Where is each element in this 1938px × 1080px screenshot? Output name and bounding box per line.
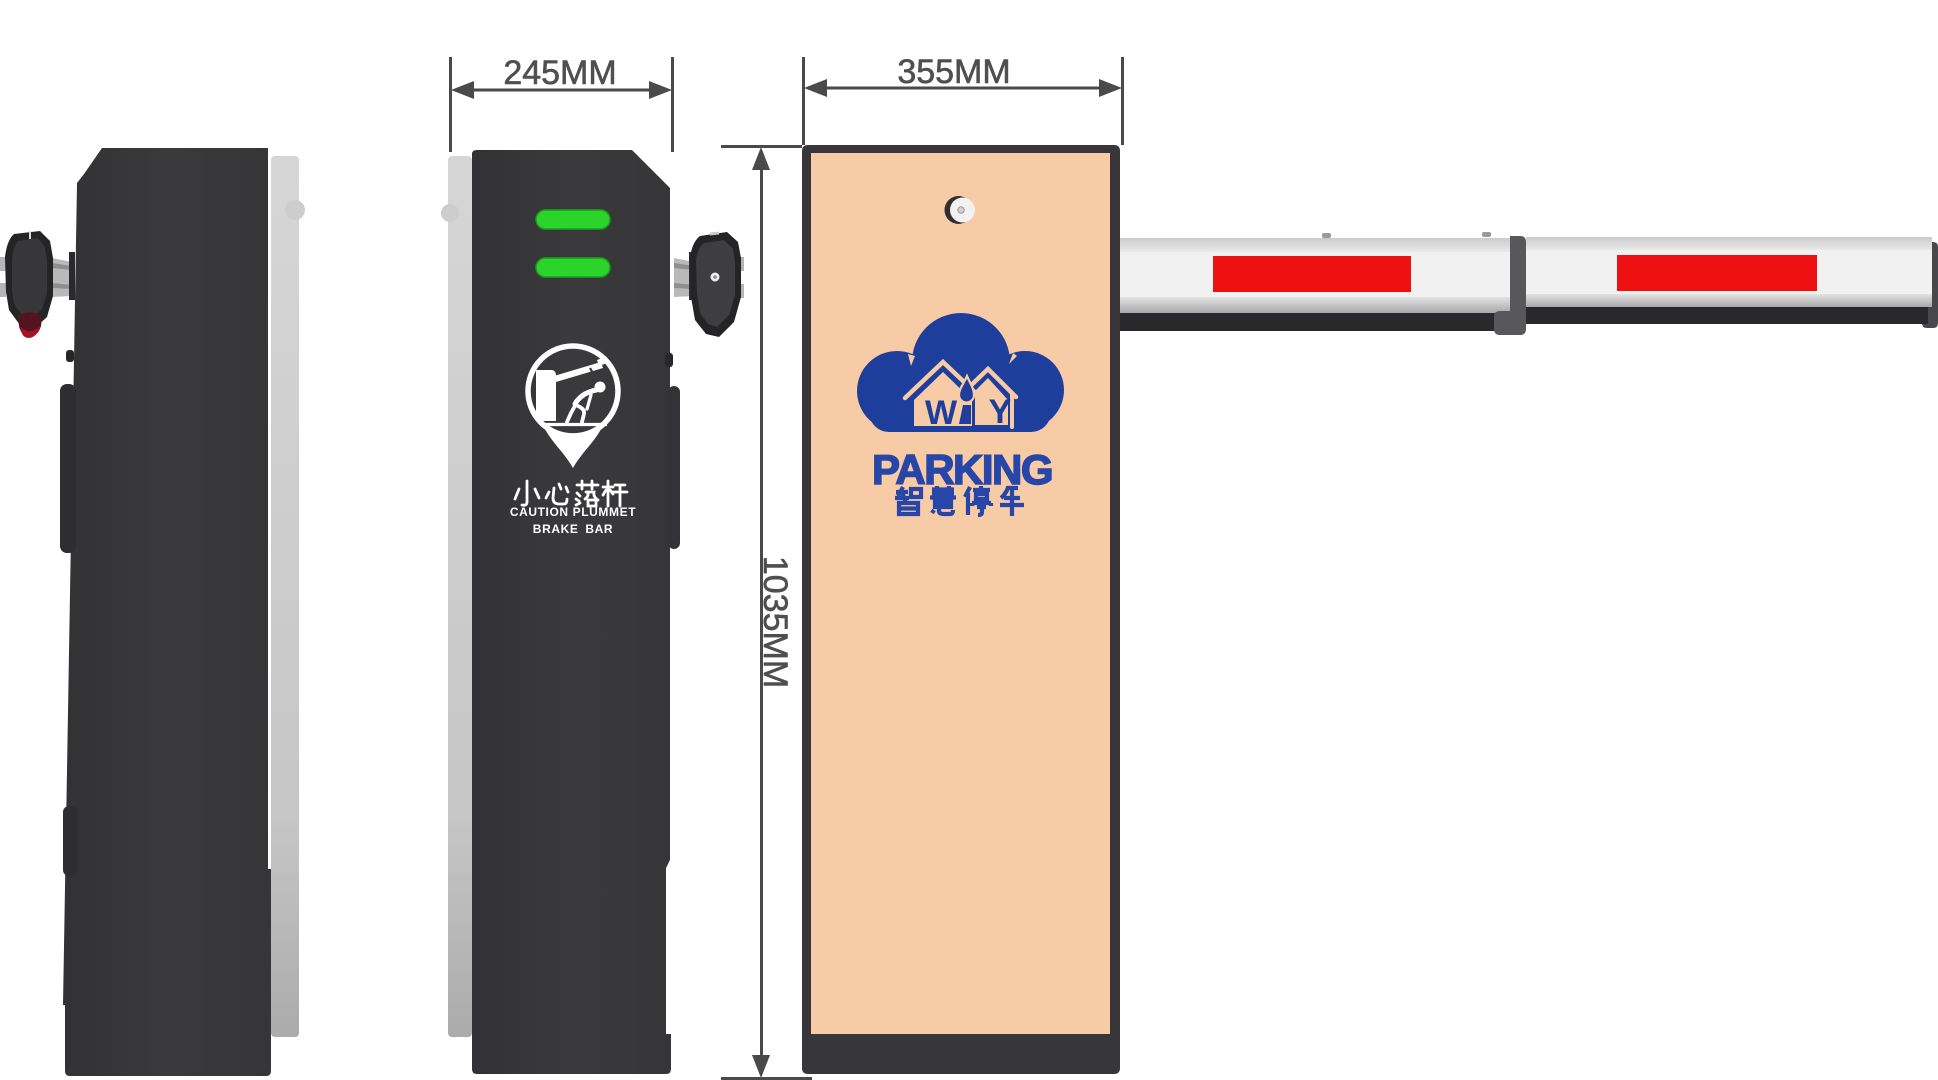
svg-text:355MM: 355MM [897,53,1010,91]
svg-text:BRAKE BAR: BRAKE BAR [533,522,613,536]
svg-text:Y: Y [989,393,1012,431]
svg-text:1035MM: 1035MM [756,556,794,688]
svg-text:CAUTION PLUMMET: CAUTION PLUMMET [510,505,636,519]
svg-text:245MM: 245MM [503,54,616,92]
svg-text:W: W [925,394,958,432]
svg-text:PARKING: PARKING [872,446,1052,493]
